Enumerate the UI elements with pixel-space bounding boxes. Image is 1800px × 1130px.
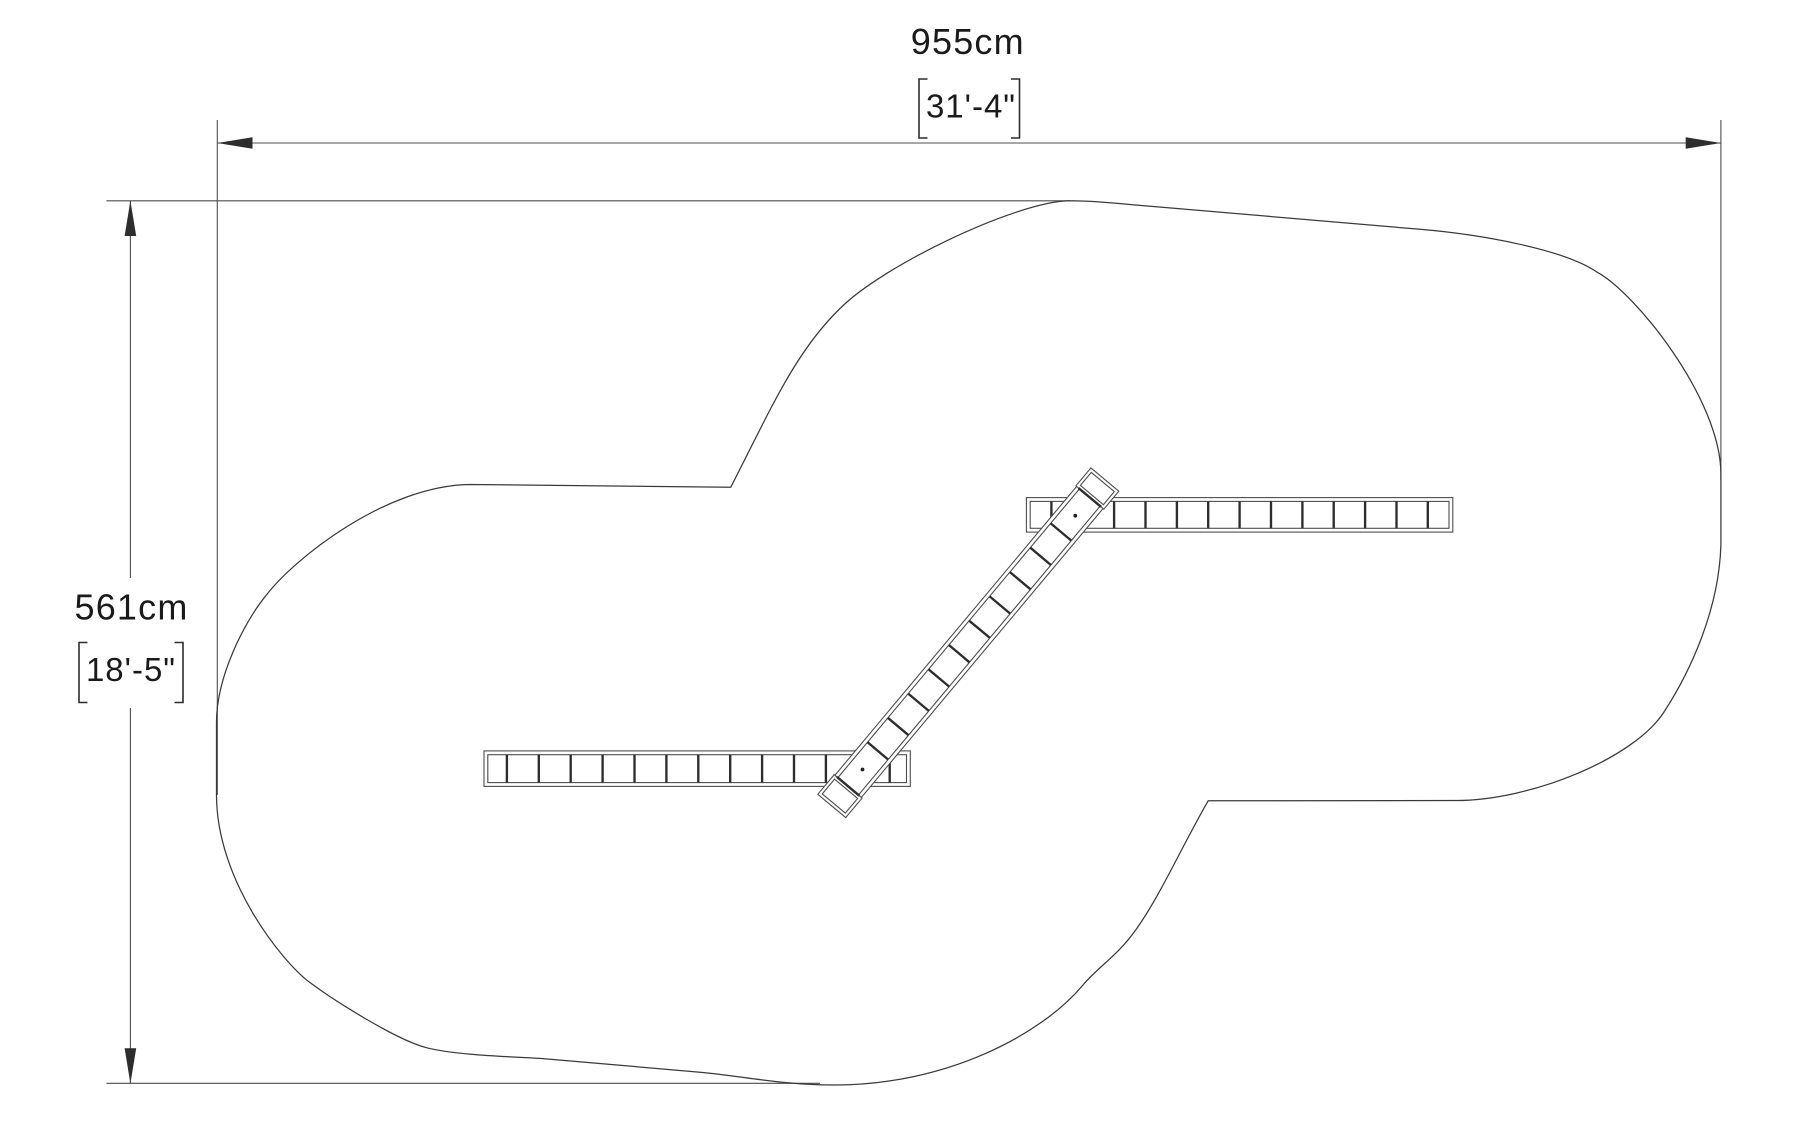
svg-text:18'-5": 18'-5" (86, 651, 176, 688)
svg-text:955cm: 955cm (911, 21, 1025, 62)
svg-text:31'-4": 31'-4" (926, 88, 1016, 125)
svg-text:561cm: 561cm (74, 587, 188, 628)
